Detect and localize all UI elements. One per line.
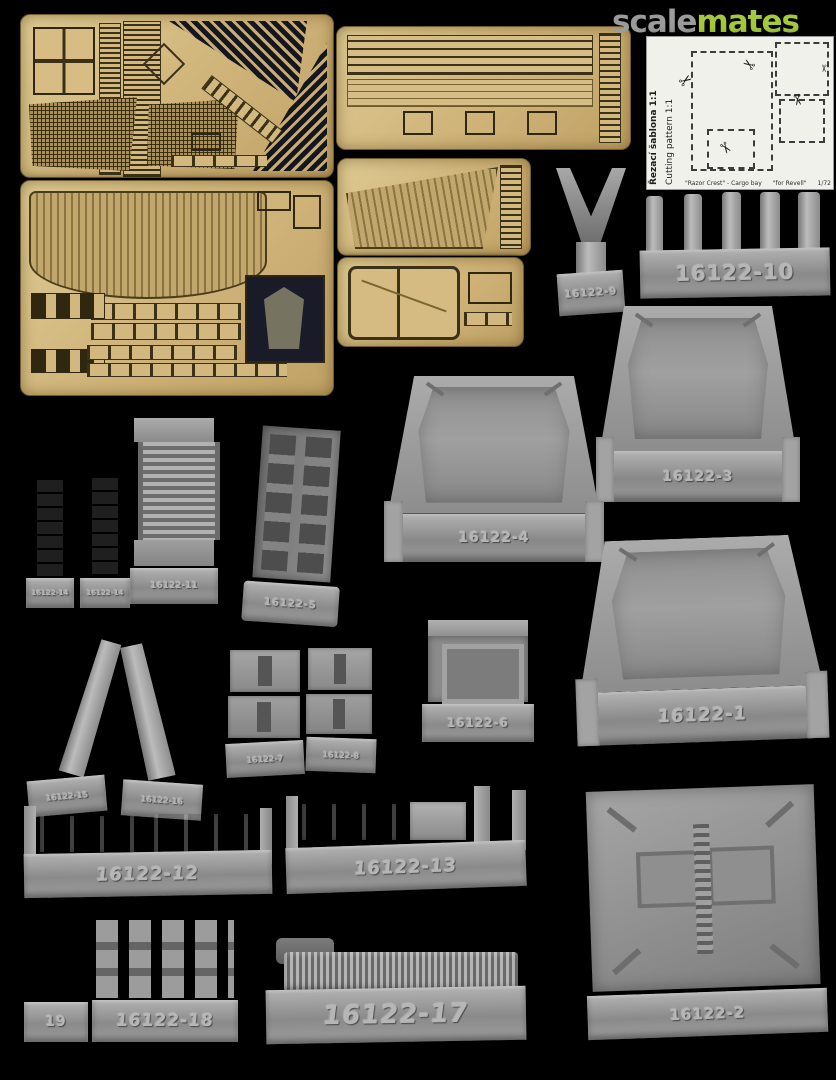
locker-recess xyxy=(258,656,272,686)
etched-fan-panel xyxy=(29,191,267,299)
pillar-column xyxy=(92,476,118,576)
ramp-body xyxy=(573,534,826,694)
wall-segment xyxy=(40,816,140,852)
part-base: 19 xyxy=(24,1002,88,1042)
panel-body xyxy=(252,425,340,582)
panel-body xyxy=(586,784,821,992)
resin-part-16122-8: 16122-8 xyxy=(306,648,376,772)
slot-column xyxy=(261,434,296,571)
part-base: 16122-3 xyxy=(598,451,798,502)
locker-row xyxy=(306,694,372,734)
photoetch-fret-d xyxy=(337,158,531,256)
wall-end-post xyxy=(286,796,298,854)
part-number: 16122-14 xyxy=(87,589,124,597)
resin-part-16122-13: 16122-13 xyxy=(286,798,526,890)
cutting-pattern-card: Řezací šablona 1:1 Cutting pattern 1:1 ✂… xyxy=(646,36,834,190)
etched-window xyxy=(403,111,433,135)
part-number: 16122-3 xyxy=(662,469,733,485)
pillar-column xyxy=(37,478,63,576)
part-number: 19 xyxy=(45,1014,66,1030)
cut-outline-right xyxy=(779,99,825,143)
resin-part-16122-12: 16122-12 xyxy=(24,812,272,896)
fin-blade xyxy=(120,642,176,781)
card-caption-row: "Razor Crest" - Cargo bay "for Revell" 1… xyxy=(685,180,831,187)
comb-posts xyxy=(96,920,234,998)
resin-post xyxy=(722,192,741,254)
resin-part-16122-10: 16122-10 xyxy=(640,192,830,297)
wall-segment xyxy=(154,814,258,852)
etched-small-part xyxy=(468,272,512,304)
locker-row xyxy=(230,650,300,692)
wall-segment xyxy=(410,802,466,840)
resin-part-19: 19 xyxy=(24,926,88,1042)
photoetch-fret-a xyxy=(20,14,334,178)
corner-detail xyxy=(765,801,794,828)
part-number: 16122-5 xyxy=(264,596,318,611)
resin-part-16122-7: 16122-7 xyxy=(226,650,304,776)
etched-clip-row xyxy=(91,323,241,340)
resin-part-16122-14-right: 16122-14 xyxy=(80,476,130,608)
part-number: 16122-18 xyxy=(115,1011,215,1031)
resin-part-16122-1: 16122-1 xyxy=(573,534,828,747)
etched-fan-panel xyxy=(346,167,498,249)
resin-part-16122-15: 16122-15 xyxy=(28,636,108,814)
part-base: 16122-12 xyxy=(24,850,273,898)
product-photo: scalemates Řezací šablona 1:1 Cutting pa… xyxy=(0,0,836,1080)
part-number: 16122-8 xyxy=(322,750,359,760)
door-sill xyxy=(134,540,214,566)
logo-mates-text: mates xyxy=(696,4,799,40)
resin-post xyxy=(760,192,780,254)
resin-part-16122-17: 16122-17 xyxy=(266,938,526,1042)
scalemates-logo: scalemates xyxy=(612,4,799,40)
part-base: 16122-2 xyxy=(587,988,828,1040)
resin-part-16122-11: 16122-11 xyxy=(130,418,218,604)
etched-clip-row xyxy=(171,155,267,167)
panel-recess xyxy=(708,846,776,906)
base-foot xyxy=(575,678,600,746)
etched-door-panel xyxy=(348,266,460,340)
part-base: 16122-5 xyxy=(241,581,340,628)
resin-part-16122-18: 16122-18 xyxy=(92,920,238,1042)
photoetch-fret-e xyxy=(337,257,524,347)
part-base: 16122-11 xyxy=(130,568,218,604)
ramp-recessed-panel xyxy=(418,387,569,503)
part-number: 16122-10 xyxy=(675,260,794,286)
ramp-recessed-panel xyxy=(628,318,768,440)
etched-brace-line xyxy=(361,280,446,313)
card-title-english: Cutting pattern 1:1 xyxy=(665,41,676,185)
resin-post xyxy=(684,194,702,254)
locker-row xyxy=(308,648,372,690)
etched-window xyxy=(527,111,557,135)
ramp-body xyxy=(598,306,798,451)
locker-row xyxy=(228,696,300,738)
door-header xyxy=(134,418,214,442)
etched-door-divider xyxy=(397,269,400,337)
etched-dark-windows xyxy=(31,293,105,319)
resin-part-16122-6: 16122-6 xyxy=(422,620,534,742)
resin-part-16122-9: 16122-9 xyxy=(548,168,634,316)
roller-shutter xyxy=(138,442,220,540)
comb-slot-row xyxy=(96,968,234,976)
wall-segment xyxy=(302,804,398,840)
resin-post xyxy=(646,196,663,254)
etched-mesh-panel xyxy=(29,97,137,171)
part-number: 16122-1 xyxy=(657,703,748,727)
logo-scale-text: scale xyxy=(612,4,696,40)
corner-detail xyxy=(769,943,799,969)
box-body xyxy=(428,636,528,702)
resin-part-16122-2: 16122-2 xyxy=(580,784,829,1040)
resin-part-16122-16: 16122-16 xyxy=(120,642,204,818)
resin-post xyxy=(798,192,820,254)
etched-small-part xyxy=(293,195,321,229)
part-base: 16122-10 xyxy=(640,247,831,298)
locker-recess xyxy=(333,699,345,729)
box-inner-frame xyxy=(442,644,524,704)
card-caption-for: "for Revell" xyxy=(773,180,807,187)
wall-tall-post xyxy=(474,786,490,842)
part-number: 16122-6 xyxy=(447,716,509,730)
etched-small-part xyxy=(191,133,221,151)
part-number: 16122-4 xyxy=(458,530,529,546)
corner-detail xyxy=(606,807,636,833)
part-base: 16122-14 xyxy=(80,578,130,608)
etched-window xyxy=(465,111,495,135)
etched-window-grid xyxy=(33,27,95,95)
part-base: 16122-8 xyxy=(305,737,376,773)
part-number: 16122-16 xyxy=(141,794,184,806)
box-top-bar xyxy=(428,620,528,636)
part-base: 16122-1 xyxy=(578,685,828,747)
center-rib-strip xyxy=(693,824,714,954)
etched-small-part xyxy=(257,191,291,211)
part-number: 16122-14 xyxy=(32,589,69,597)
ramp-body xyxy=(386,376,602,514)
locker-recess xyxy=(257,702,271,732)
resin-part-16122-5: 16122-5 xyxy=(241,425,350,627)
etched-clip-row xyxy=(87,363,287,377)
panel-recess xyxy=(636,850,702,908)
part-base: 16122-13 xyxy=(285,840,526,894)
part-base: 16122-18 xyxy=(92,1000,238,1042)
resin-part-16122-4: 16122-4 xyxy=(386,376,602,562)
resin-part-16122-3: 16122-3 xyxy=(598,306,798,502)
part-base: 16122-14 xyxy=(26,578,74,608)
base-foot xyxy=(782,437,800,502)
scissors-icon: ✂ xyxy=(818,64,829,72)
photoetch-fret-c xyxy=(20,180,334,396)
comb-slot-row xyxy=(96,942,234,950)
part-base: 16122-4 xyxy=(386,514,602,562)
part-base: 16122-15 xyxy=(27,775,108,818)
locker-recess xyxy=(334,654,346,684)
part-number: 16122-7 xyxy=(246,754,283,765)
etched-long-strips xyxy=(347,35,593,75)
etched-silhouette xyxy=(259,287,309,349)
etched-clip-row xyxy=(87,345,237,360)
slot-column xyxy=(297,436,332,573)
part-base: 16122-17 xyxy=(266,986,527,1045)
photoetch-fret-b xyxy=(336,26,631,150)
etched-ladder-strip xyxy=(599,33,621,143)
card-title-czech: Řezací šablona 1:1 xyxy=(649,41,660,185)
etched-clip-row xyxy=(91,303,241,320)
card-caption-scale: 1/72 xyxy=(818,180,831,187)
part-base: 16122-7 xyxy=(225,740,305,778)
etched-ladder-strip xyxy=(500,165,522,249)
corner-detail xyxy=(612,948,641,975)
part-number: 16122-11 xyxy=(150,581,198,591)
etched-film-patch xyxy=(245,275,325,363)
part-number: 16122-17 xyxy=(321,999,470,1032)
part-number: 16122-12 xyxy=(96,863,201,886)
part-number: 16122-13 xyxy=(354,855,459,880)
resin-part-16122-14-left: 16122-14 xyxy=(26,478,74,608)
part-base: 16122-6 xyxy=(422,704,534,742)
ramp-recessed-panel xyxy=(610,547,788,680)
base-foot xyxy=(805,670,830,738)
part-number: 16122-2 xyxy=(669,1004,745,1025)
base-foot xyxy=(384,501,403,562)
card-caption-product: "Razor Crest" - Cargo bay xyxy=(685,180,762,187)
part-number: 16122-9 xyxy=(564,286,618,301)
v-fin-shape xyxy=(556,168,626,246)
small-box xyxy=(32,926,76,998)
etched-clip-row xyxy=(464,312,512,326)
part-number: 16122-15 xyxy=(46,790,89,803)
fin-blade xyxy=(59,638,122,778)
etched-long-strips xyxy=(347,79,593,107)
